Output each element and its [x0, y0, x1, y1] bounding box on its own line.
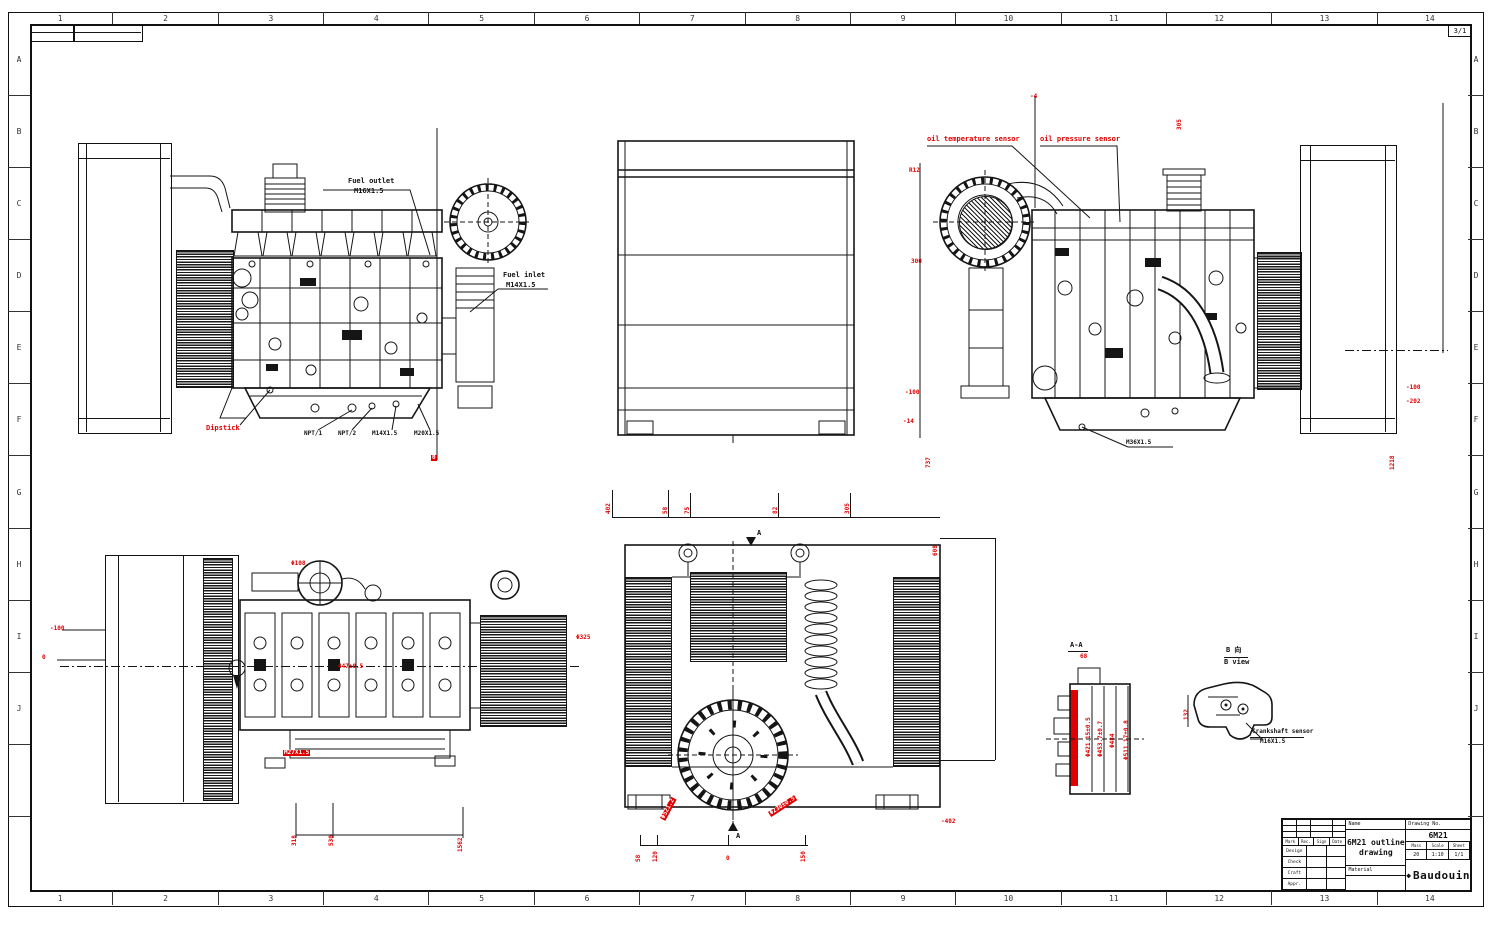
- oil-drain-thread-label: M36X1.5: [1126, 440, 1151, 447]
- grid-col-label: 12: [1167, 12, 1272, 24]
- grid-ruler-top: 1234567891011121314: [8, 12, 1482, 24]
- crankshaft-sensor-label: Crankshaft sensor: [1252, 729, 1313, 736]
- drawing-sheet: 1234567891011121314 1234567891011121314 …: [0, 0, 1500, 925]
- drain-thread2-label: M20X1.5: [414, 431, 439, 438]
- grid-row-label: [1468, 745, 1484, 817]
- dim-58: 58: [663, 507, 669, 514]
- npt2-label: NPT/2: [338, 431, 356, 438]
- sign-row-blank: [1327, 868, 1346, 878]
- dim-305: 305: [1177, 119, 1183, 130]
- grid-col-label: 13: [1272, 891, 1377, 905]
- dim-line: [940, 538, 995, 539]
- grid-row-label: I: [8, 601, 30, 673]
- engine-front-view: [905, 88, 1455, 478]
- grid-col-label: 1: [8, 12, 113, 24]
- meta-value-row: 201:101/1: [1406, 850, 1470, 860]
- grid-row-label: H: [8, 529, 30, 601]
- fuel-inlet-label: Fuel inlet: [503, 272, 545, 280]
- dim-1218: 1218: [1390, 456, 1396, 470]
- grid-row-label: E: [8, 312, 30, 384]
- dipstick-label: Dipstick: [206, 425, 240, 433]
- dim-b0: 0: [726, 856, 730, 862]
- grid-col-label: 10: [956, 12, 1061, 24]
- b-view: [1180, 665, 1295, 760]
- rev-header-row: MarkRec.SignDate: [1283, 838, 1345, 846]
- grid-row-label: C: [1468, 168, 1484, 240]
- oil-pressure-sensor-label: oil pressure sensor: [1040, 136, 1120, 143]
- grid-row-label: G: [8, 456, 30, 528]
- dim-132: 132: [1184, 709, 1190, 720]
- dim-aa-3: Φ511.17±0.8: [1124, 720, 1130, 760]
- dim-ext: [805, 835, 806, 845]
- dim-75: 75: [685, 507, 691, 514]
- grid-col-label: 13: [1272, 12, 1377, 24]
- engine-side-view: [60, 118, 560, 470]
- engine-top-view: [55, 523, 590, 853]
- grid-col-label: 14: [1378, 891, 1482, 905]
- grid-row-label: I: [1468, 601, 1484, 673]
- grid-row-label: D: [8, 240, 30, 312]
- sign-row-blank: [1327, 879, 1346, 889]
- grid-col-label: 12: [1167, 891, 1272, 905]
- npt1-label: NPT/1: [304, 431, 322, 438]
- dim-aa-2: Φ484: [1110, 734, 1116, 748]
- oil-temp-sensor-label: oil temperature sensor: [927, 136, 1020, 143]
- revision-box: [31, 25, 75, 42]
- grid-ruler-right: ABCDEFGHIJ: [1468, 24, 1484, 888]
- grid-col-label: 4: [324, 12, 429, 24]
- dim-right-m100: -100: [1406, 385, 1420, 391]
- dim-r12: R12: [909, 168, 920, 174]
- grid-row-label: A: [8, 24, 30, 96]
- dim-325: Φ325: [576, 635, 590, 641]
- fuel-inlet-thread: M14X1.5: [506, 282, 536, 290]
- sign-row-blank: [1307, 846, 1327, 856]
- brand-logo: Baudouin: [1413, 869, 1470, 882]
- grid-col-label: 6: [535, 891, 640, 905]
- dim-447: 447±0.5: [338, 664, 363, 670]
- grid-row-label: F: [1468, 384, 1484, 456]
- dim-ext: [728, 835, 729, 845]
- grid-col-label: 9: [851, 12, 956, 24]
- grid-col-label: 3: [219, 12, 324, 24]
- meta-header-cell: Mass: [1406, 842, 1427, 849]
- rev-header-cell: Rec.: [1299, 838, 1315, 845]
- dim-m14: -14: [903, 419, 914, 425]
- section-aa-view: [1040, 638, 1150, 803]
- grid-row-label: B: [8, 96, 30, 168]
- grid-col-label: 5: [429, 891, 534, 905]
- grid-row-label: F: [8, 384, 30, 456]
- dim-ext: [657, 835, 658, 845]
- fuel-outlet-thread: M16X1.5: [354, 188, 384, 196]
- sign-row-blank: [1307, 868, 1327, 878]
- grid-row-label: J: [1468, 673, 1484, 745]
- grid-col-label: 7: [640, 12, 745, 24]
- dim-ext: [640, 835, 641, 845]
- grid-col-label: 2: [113, 12, 218, 24]
- section-a-top-label: A: [757, 530, 761, 538]
- title-block-right: Drawing No. 6M21 MassScaleSheet 201:101/…: [1406, 820, 1470, 890]
- grid-col-label: 5: [429, 12, 534, 24]
- b-view-title-cn: B 向: [1226, 647, 1241, 655]
- dim-108: Φ108: [291, 561, 305, 567]
- dim-v4-zero: 0: [42, 655, 46, 661]
- dim-ext: [612, 490, 613, 517]
- dim-608: 608: [933, 545, 939, 556]
- meta-header-row: MassScaleSheet: [1406, 842, 1470, 850]
- crank-leader: [1250, 737, 1304, 738]
- grid-row-label: D: [1468, 240, 1484, 312]
- grid-col-label: 3: [219, 891, 324, 905]
- grid-row-label: E: [1468, 312, 1484, 384]
- grid-col-label: 8: [746, 12, 851, 24]
- drawing-no-value: 6M21: [1428, 831, 1447, 840]
- material-label: Material: [1346, 866, 1405, 876]
- grid-col-label: 2: [113, 891, 218, 905]
- dim-line: [940, 760, 995, 761]
- sign-row-blank: [1327, 857, 1346, 867]
- name-header: Name: [1346, 820, 1405, 830]
- sign-row-label: Design: [1283, 846, 1307, 856]
- revision-box: [73, 25, 143, 42]
- grid-row-label: H: [1468, 529, 1484, 601]
- grid-col-label: 11: [1062, 12, 1167, 24]
- dim-line: [640, 845, 808, 846]
- meta-header-cell: Sheet: [1449, 842, 1470, 849]
- dim-line: [995, 538, 996, 760]
- grid-row-label: G: [1468, 456, 1484, 528]
- dim-m100: -100: [905, 390, 919, 396]
- dim-402: 402: [606, 503, 612, 514]
- title-block-left: MarkRec.SignDate Design Check: [1283, 820, 1346, 890]
- grid-col-label: 1: [8, 891, 113, 905]
- grid-col-label: 14: [1378, 12, 1482, 24]
- dim-b58: 58: [636, 855, 642, 862]
- dim-aa-0: Φ421.15±0.5: [1086, 717, 1092, 757]
- dim-737: 737: [926, 457, 932, 468]
- drain-thread-label: M14X1.5: [372, 431, 397, 438]
- dim-318: 318: [292, 835, 298, 846]
- dim-right-m202: -202: [1406, 399, 1420, 405]
- meta-value-cell: 20: [1406, 850, 1427, 859]
- sign-row-label: Check: [1283, 857, 1307, 867]
- sign-row-label: Appr.: [1283, 879, 1307, 889]
- title-block: MarkRec.SignDate Design Check: [1281, 818, 1472, 892]
- drawing-no-header: Drawing No.: [1406, 820, 1470, 830]
- dim-82: 82: [773, 507, 779, 514]
- dim-300: 300: [911, 259, 922, 265]
- grid-ruler-bottom: 1234567891011121314: [8, 891, 1482, 905]
- dim-m4: -4: [1030, 94, 1037, 100]
- sign-row-blank: [1307, 879, 1327, 889]
- section-a-bottom-label: A: [736, 833, 740, 841]
- dim-b120: 120: [653, 851, 659, 862]
- grid-row-label: [8, 745, 30, 817]
- sign-row-blank: [1307, 857, 1327, 867]
- title-block-middle: Name 6M21 outline drawing Material: [1346, 820, 1406, 890]
- dim-b150: 150: [801, 851, 807, 862]
- grid-col-label: 8: [746, 891, 851, 905]
- grid-col-label: 10: [956, 891, 1061, 905]
- grid-col-label: 11: [1062, 891, 1167, 905]
- sheet-number: 3/1: [1454, 27, 1467, 35]
- brand-diamond-icon: ◆: [1406, 871, 1411, 880]
- meta-value-cell: 1/1: [1449, 850, 1470, 859]
- dim-m27: M27X1.5: [283, 750, 310, 756]
- grid-row-label: B: [1468, 96, 1484, 168]
- grid-col-label: 7: [640, 891, 745, 905]
- sign-row-blank: [1327, 846, 1346, 856]
- grid-col-label: 6: [535, 12, 640, 24]
- dim-530: 530: [329, 835, 335, 846]
- dim-1562: 1562: [458, 838, 464, 852]
- dim-line: [612, 517, 940, 518]
- dim-v1-zero: 0: [431, 455, 437, 461]
- revision-divider: [31, 32, 141, 33]
- meta-header-cell: Scale: [1427, 842, 1448, 849]
- grid-row-label: J: [8, 673, 30, 745]
- grid-ruler-left: ABCDEFGHIJ: [8, 24, 30, 888]
- drawing-title-line2: drawing: [1359, 848, 1393, 858]
- sign-row-label: Craft: [1283, 868, 1307, 878]
- dim-v4-m100: -100: [50, 626, 64, 632]
- rev-header-cell: Sign: [1314, 838, 1330, 845]
- grid-row-label: C: [8, 168, 30, 240]
- grid-row-label: [8, 817, 30, 888]
- engine-rear-view: [615, 138, 857, 440]
- meta-value-cell: 1:10: [1427, 850, 1448, 859]
- dim-aa-1: Φ453.7±0.7: [1098, 721, 1104, 757]
- drawing-title-line1: 6M21 outline: [1347, 838, 1405, 848]
- sign-rows: Design Check Craft: [1283, 846, 1345, 890]
- rev-header-cell: Mark: [1283, 838, 1299, 845]
- dim-m402: -402: [941, 819, 955, 825]
- dim-305b: 305: [845, 503, 851, 514]
- fuel-outlet-label: Fuel outlet: [348, 178, 394, 186]
- sheet-number-box: 3/1: [1448, 25, 1472, 37]
- crankshaft-sensor-thread: M16X1.5: [1260, 739, 1285, 746]
- rev-header-cell: Date: [1330, 838, 1346, 845]
- grid-col-label: 4: [324, 891, 429, 905]
- grid-col-label: 9: [851, 891, 956, 905]
